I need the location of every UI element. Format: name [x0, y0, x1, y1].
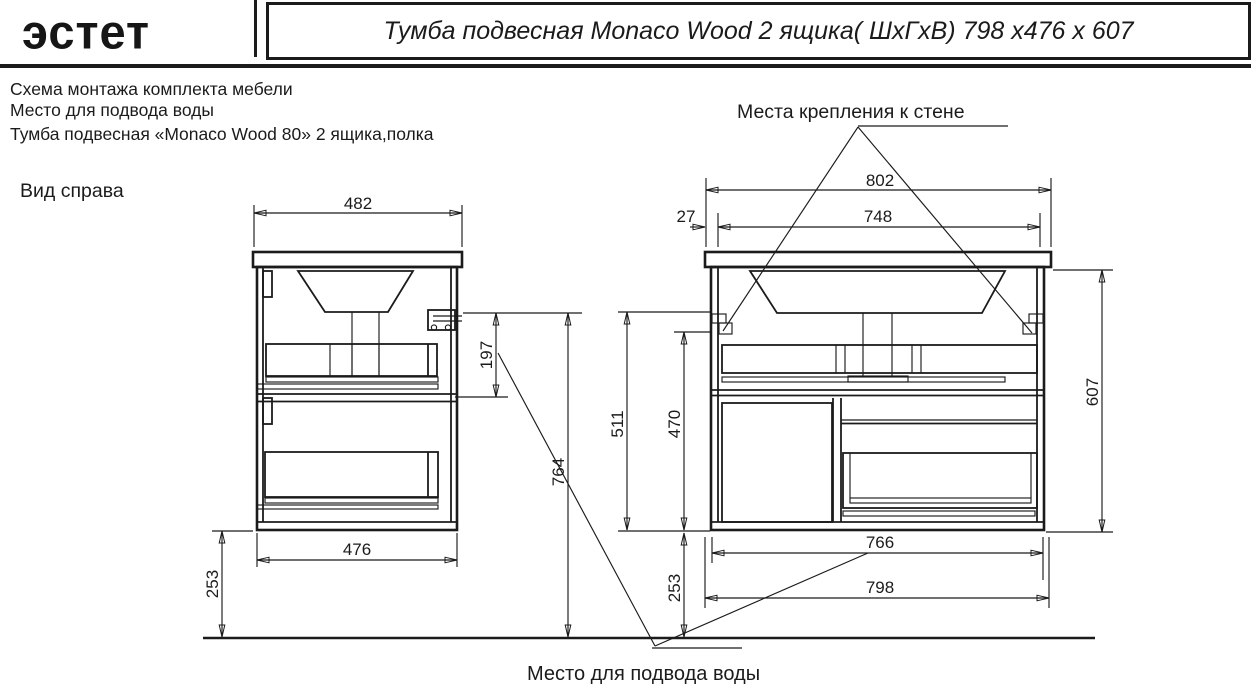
side-lower-drawer	[257, 452, 438, 509]
side-upper-drawer	[257, 344, 438, 389]
front-left-door	[722, 403, 832, 522]
side-basin	[298, 271, 413, 312]
dim-label-798: 798	[866, 578, 894, 597]
front-right-bracket	[1023, 314, 1043, 334]
dim-476: 476	[257, 533, 457, 567]
dim-511: 511	[608, 312, 710, 530]
side-cabinet-body	[257, 267, 457, 530]
technical-drawing: 482 197 764 476 253	[0, 0, 1251, 691]
front-countertop	[705, 252, 1051, 267]
side-back-strip-top	[263, 271, 272, 297]
front-basin	[750, 271, 1005, 313]
dim-470: 470	[618, 332, 711, 531]
mounting-scheme-page: эстет Тумба подвесная Monaco Wood 2 ящик…	[0, 0, 1251, 691]
water-supply-leader-lines	[498, 353, 868, 648]
dim-253-front: 253	[665, 533, 684, 637]
dim-label-607: 607	[1083, 378, 1102, 406]
dim-766: 766	[712, 533, 1043, 580]
front-lower-section	[722, 398, 1037, 522]
dim-label-764: 764	[549, 458, 568, 486]
dim-label-802: 802	[866, 171, 894, 190]
side-view-dimensions: 482 197 764 476 253	[203, 194, 582, 637]
dim-label-27: 27	[677, 207, 696, 226]
dim-label-511: 511	[608, 410, 627, 437]
dim-482: 482	[254, 194, 462, 247]
front-left-bracket	[712, 314, 732, 334]
dim-label-766: 766	[866, 533, 894, 552]
front-upper-drawer	[722, 345, 1037, 382]
dim-label-470: 470	[665, 410, 684, 438]
dim-748: 748	[718, 207, 1040, 247]
dim-label-197: 197	[477, 341, 496, 369]
dim-label-748: 748	[864, 207, 892, 226]
dim-27: 27	[677, 207, 705, 227]
dim-label-253-side: 253	[203, 570, 222, 598]
dim-label-253-front: 253	[665, 574, 684, 602]
dim-253-side: 253	[203, 531, 253, 637]
side-countertop	[253, 252, 462, 267]
front-bottom-drawer	[843, 453, 1037, 516]
dim-607: 607	[1046, 270, 1113, 532]
side-view-drawing	[253, 252, 462, 530]
dim-label-482: 482	[344, 194, 372, 213]
front-cabinet-body	[711, 267, 1044, 530]
dim-label-476: 476	[343, 540, 371, 559]
dim-197: 197	[455, 313, 508, 397]
